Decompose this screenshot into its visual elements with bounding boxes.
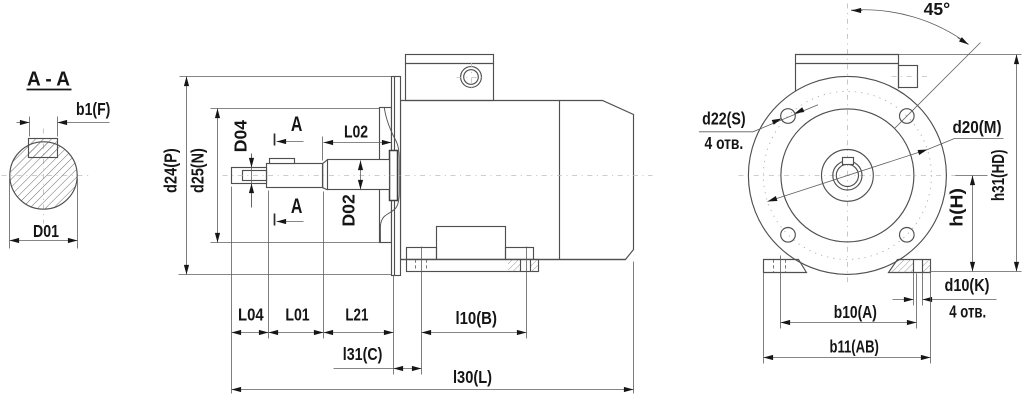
svg-text:d24(P): d24(P) [161, 148, 181, 193]
svg-text:A: A [291, 195, 303, 218]
svg-text:b10(A): b10(A) [834, 302, 877, 322]
svg-text:d20(M): d20(M) [952, 117, 1001, 137]
svg-text:L02: L02 [344, 122, 368, 142]
svg-text:d10(K): d10(K) [945, 275, 990, 295]
svg-text:l31(C): l31(C) [343, 344, 383, 364]
svg-text:D04: D04 [231, 120, 251, 152]
svg-text:D01: D01 [33, 221, 59, 241]
svg-text:d25(N): d25(N) [188, 148, 208, 193]
svg-text:A - A: A - A [27, 69, 70, 91]
svg-text:h31(HD): h31(HD) [988, 150, 1008, 202]
svg-text:D02: D02 [339, 194, 359, 227]
svg-text:h(H): h(H) [946, 188, 966, 227]
svg-text:l30(L): l30(L) [453, 367, 492, 387]
svg-text:d22(S): d22(S) [702, 109, 746, 129]
svg-text:L01: L01 [285, 305, 310, 325]
svg-text:L04: L04 [238, 305, 264, 325]
svg-text:L21: L21 [345, 305, 368, 325]
svg-text:b1(F): b1(F) [76, 99, 110, 119]
svg-text:A: A [291, 113, 303, 136]
svg-text:l10(B): l10(B) [455, 308, 497, 328]
svg-text:45°: 45° [924, 0, 951, 19]
svg-text:4 отв.: 4 отв. [949, 302, 986, 322]
svg-text:b11(AB): b11(AB) [830, 336, 879, 356]
svg-text:4 отв.: 4 отв. [705, 133, 744, 153]
